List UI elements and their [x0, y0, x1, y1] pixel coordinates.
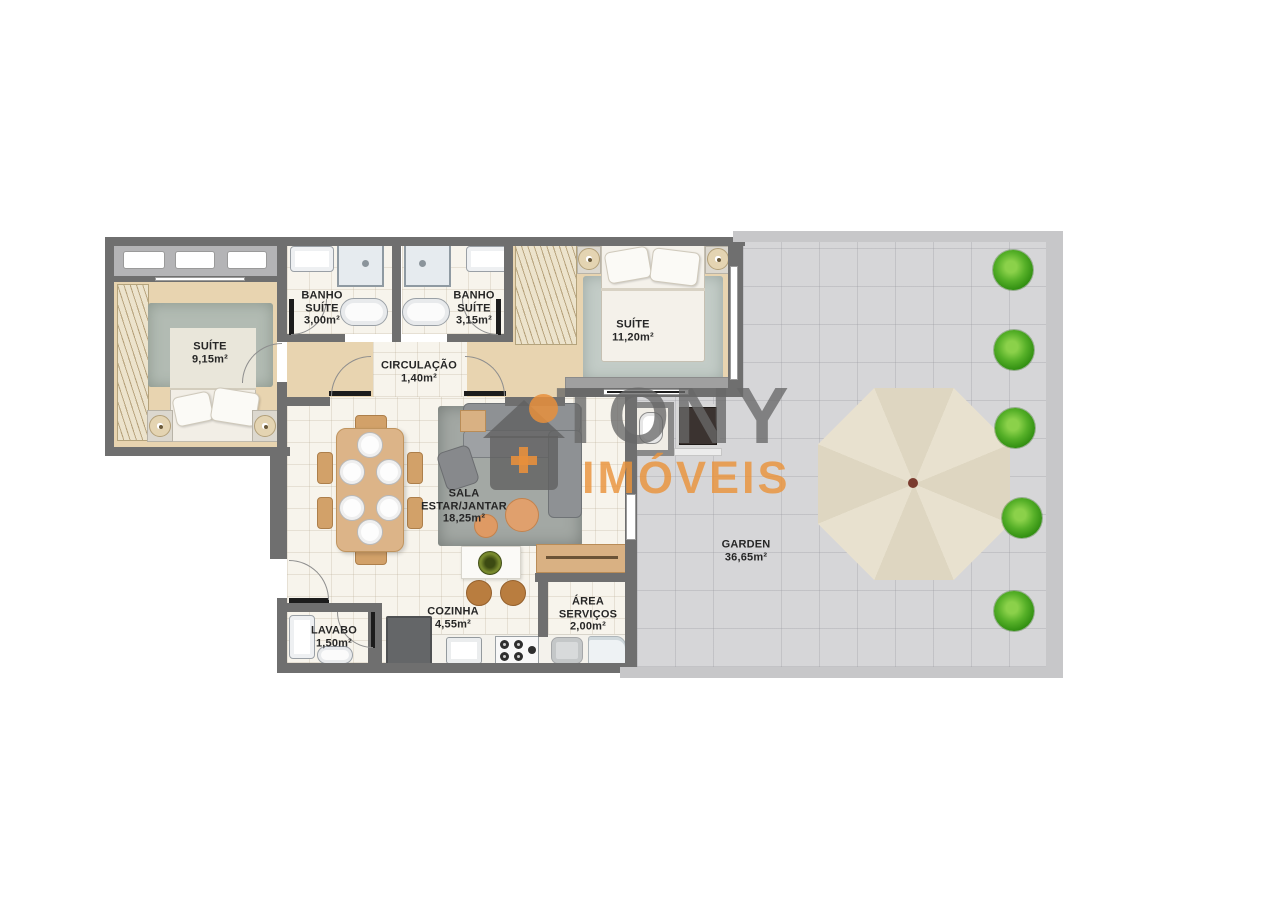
fruit-bowl-icon — [478, 551, 502, 575]
washing-machine-icon — [588, 636, 626, 665]
fridge-icon — [386, 616, 432, 666]
wall — [538, 582, 548, 637]
room-label-garden: GARDEN 36,65m² — [722, 539, 771, 564]
garden-wall — [1046, 231, 1063, 678]
shower-icon — [404, 239, 451, 287]
label-line: GARDEN — [722, 539, 771, 552]
window — [155, 277, 245, 281]
lamp-icon — [707, 248, 729, 270]
wall — [277, 246, 287, 342]
shower-drain-icon — [419, 260, 426, 267]
wall — [277, 382, 287, 456]
label-line: 11,20m² — [612, 331, 654, 344]
wall — [105, 447, 290, 456]
sideboard-detail — [546, 556, 618, 559]
laundry-tub-icon — [551, 637, 583, 664]
label-line: 1,40m² — [381, 372, 457, 385]
plate-icon — [376, 495, 402, 521]
watermark-brand2: IMÓVEIS — [582, 455, 791, 500]
label-line: SUÍTE — [612, 319, 654, 332]
label-line: SUÍTE — [453, 302, 494, 315]
lamp-icon — [149, 415, 171, 437]
wall — [105, 237, 114, 456]
plate-icon — [357, 519, 383, 545]
wardrobe-icon — [117, 284, 149, 441]
pillow — [649, 247, 701, 287]
toilet-icon — [402, 298, 450, 326]
shrub-icon — [994, 591, 1034, 631]
stove-burner-icon — [528, 646, 536, 654]
stove-burner-icon — [500, 640, 509, 649]
stove-burner-icon — [500, 652, 509, 661]
shrub-icon — [995, 408, 1035, 448]
label-line: 9,15m² — [192, 353, 228, 366]
label-line: 3,00m² — [301, 314, 342, 327]
label-line: BANHO — [301, 289, 342, 302]
label-line: 18,25m² — [421, 512, 507, 525]
label-line: COZINHA — [427, 606, 479, 619]
label-line: ESTAR/JANTAR — [421, 500, 507, 513]
wall — [277, 598, 287, 673]
stool-icon — [466, 580, 492, 606]
room-label-cozinha: COZINHA 4,55m² — [427, 606, 479, 631]
wall — [287, 397, 330, 406]
label-line: SUÍTE — [192, 341, 228, 354]
chair-icon — [317, 497, 333, 529]
shrub-icon — [993, 250, 1033, 290]
garden-wall — [733, 231, 1063, 242]
label-line: BANHO — [453, 289, 494, 302]
chair-icon — [317, 452, 333, 484]
plate-icon — [357, 432, 383, 458]
stove-burner-icon — [514, 652, 523, 661]
wall — [504, 246, 513, 342]
stove-burner-icon — [514, 640, 523, 649]
wall — [447, 334, 504, 342]
lamp-icon — [578, 248, 600, 270]
room-label-lavabo: LAVABO 1,50m² — [311, 625, 357, 650]
wall — [535, 573, 628, 582]
wardrobe-icon — [515, 242, 577, 345]
plate-icon — [376, 459, 402, 485]
wall — [105, 237, 745, 246]
label-line: 36,65m² — [722, 551, 771, 564]
label-line: 4,55m² — [427, 618, 479, 631]
window — [175, 251, 215, 269]
bathroom-sink-icon — [290, 246, 334, 272]
coffee-table-icon — [505, 498, 539, 532]
label-line: CIRCULAÇÃO — [381, 360, 457, 373]
garden-wall — [620, 667, 1063, 678]
lamp-icon — [254, 415, 276, 437]
plate-icon — [339, 495, 365, 521]
stool-icon — [500, 580, 526, 606]
label-line: 3,15m² — [453, 314, 494, 327]
shower-drain-icon — [362, 260, 369, 267]
orange-dot-icon — [529, 394, 558, 423]
room-label-banho-suite2: BANHO SUÍTE 3,15m² — [453, 289, 494, 327]
floor-plan: SUÍTE 9,15m² BANHO SUÍTE 3,00m² BANHO SU… — [0, 0, 1280, 904]
label-line: SUÍTE — [301, 302, 342, 315]
label-line: LAVABO — [311, 625, 357, 638]
wall — [287, 334, 345, 342]
shower-icon — [337, 239, 384, 287]
plate-icon — [339, 459, 365, 485]
toilet-icon — [340, 298, 388, 326]
window — [730, 266, 738, 380]
plus-window-icon — [519, 447, 528, 473]
chair-icon — [407, 452, 423, 484]
umbrella-center-dot — [908, 478, 918, 488]
window — [227, 251, 267, 269]
label-line: 2,00m² — [559, 620, 617, 633]
window — [123, 251, 165, 269]
kitchen-sink-icon — [446, 637, 482, 664]
room-label-suite2: SUÍTE 11,20m² — [612, 319, 654, 344]
label-line: ÁREA — [559, 595, 617, 608]
watermark-brand: TONY — [556, 376, 793, 456]
room-label-area-servicos: ÁREA SERVIÇOS 2,00m² — [559, 595, 617, 633]
room-label-banho-suite1: BANHO SUÍTE 3,00m² — [301, 289, 342, 327]
wall — [277, 663, 635, 673]
room-label-circulacao: CIRCULAÇÃO 1,40m² — [381, 360, 457, 385]
shrub-icon — [1002, 498, 1042, 538]
label-line: 1,50m² — [311, 637, 357, 650]
shrub-icon — [994, 330, 1034, 370]
label-line: SERVIÇOS — [559, 608, 617, 621]
wall — [392, 246, 401, 342]
room-label-suite1: SUÍTE 9,15m² — [192, 341, 228, 366]
bed-fold — [601, 288, 705, 291]
wall — [270, 447, 287, 559]
